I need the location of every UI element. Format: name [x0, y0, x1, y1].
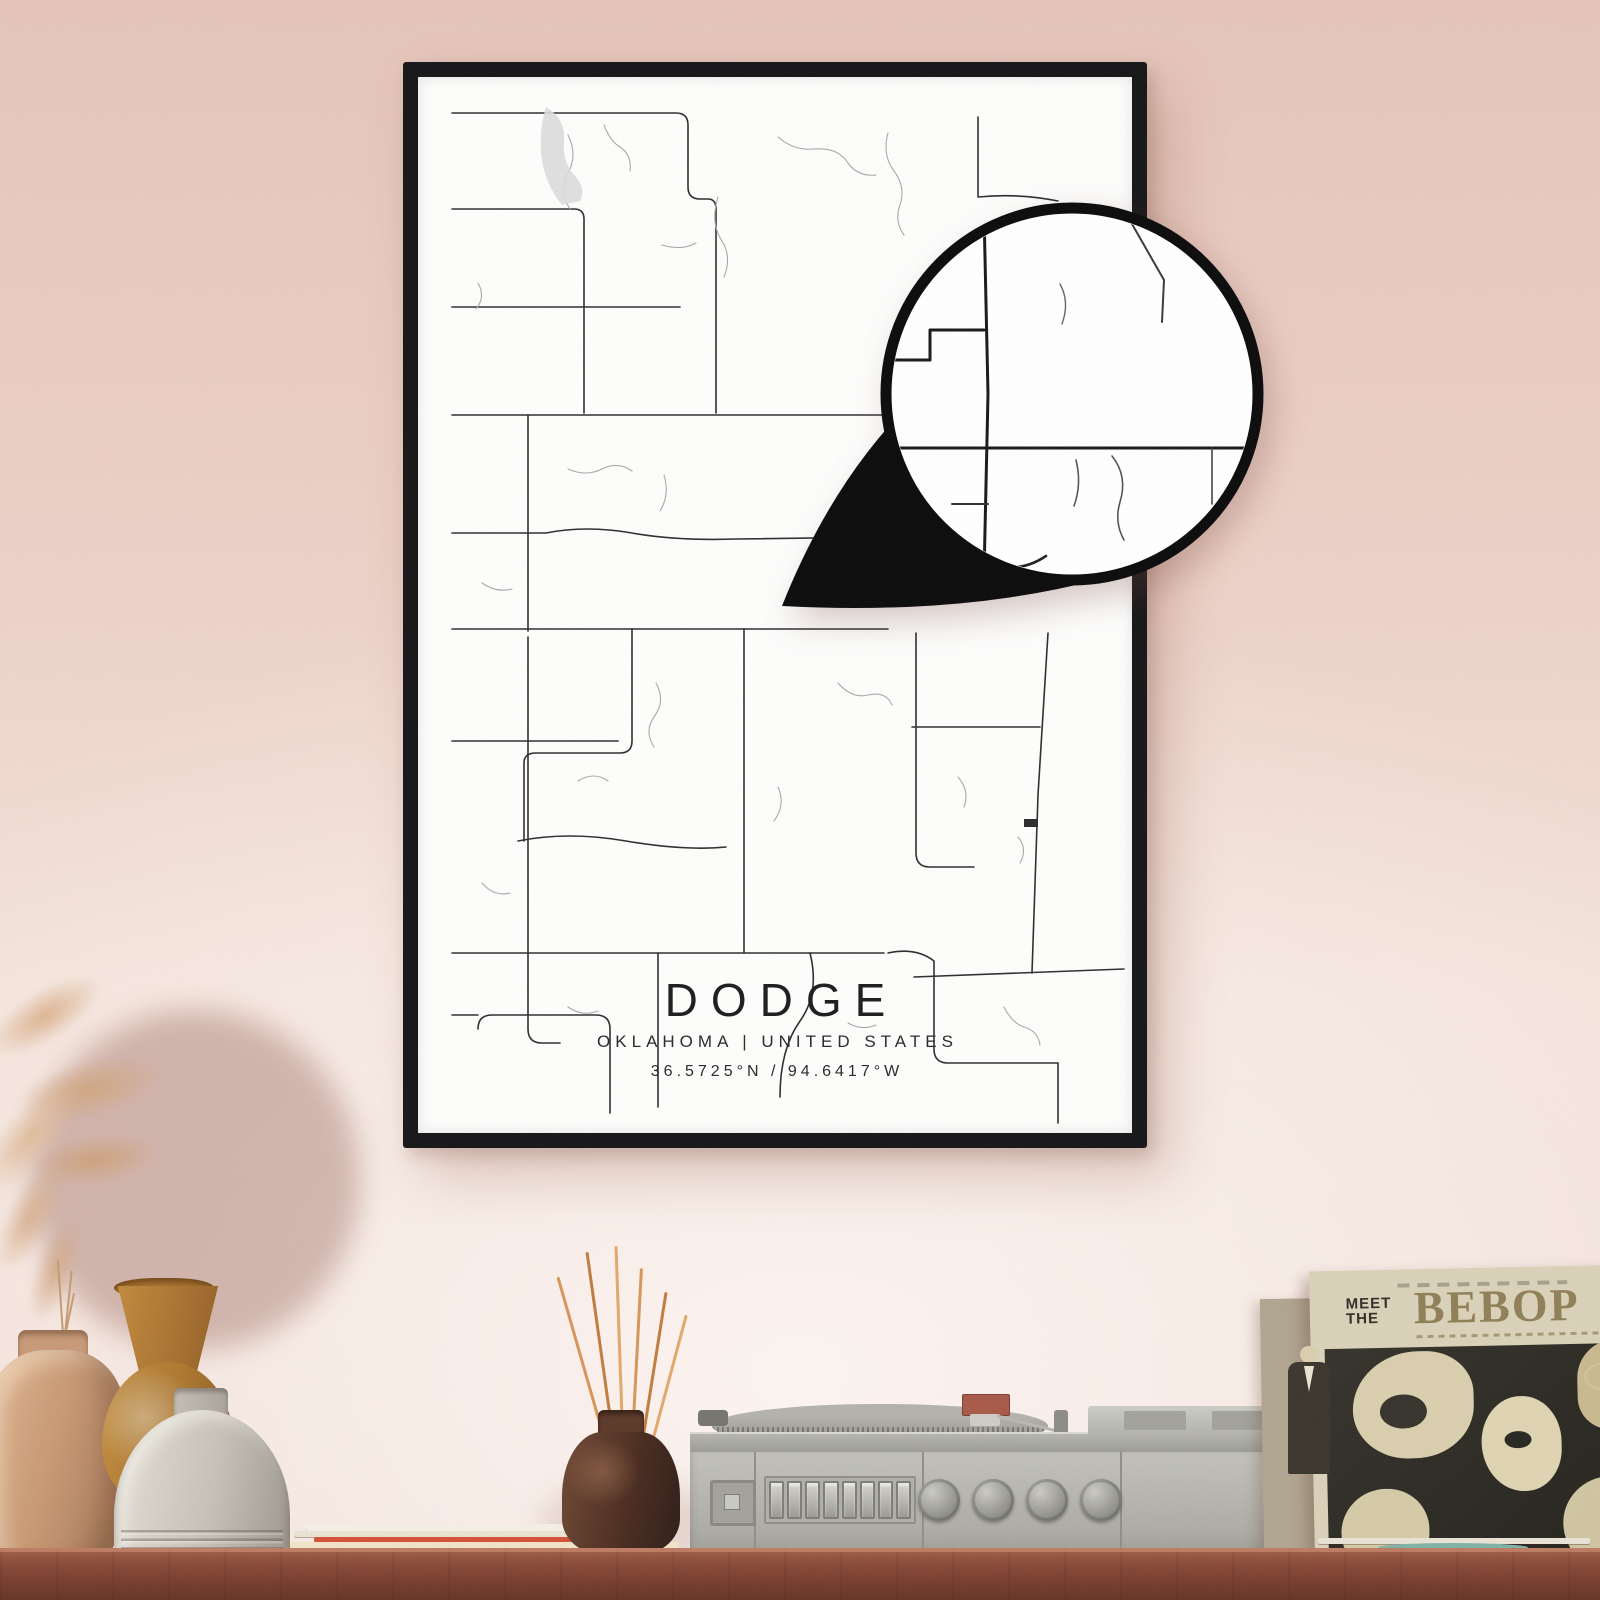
preset-button-row	[764, 1476, 916, 1524]
diffuser-bottle	[562, 1432, 680, 1556]
volume-knob	[918, 1479, 960, 1521]
cartridge-base	[970, 1414, 1000, 1426]
product-photo-scene: DODGE OKLAHOMA | UNITED STATES 36.5725°N…	[0, 0, 1600, 1600]
treble-knob	[1026, 1479, 1068, 1521]
preset-button	[805, 1481, 820, 1519]
platter-clip	[698, 1410, 728, 1426]
reed-diffuser	[540, 1250, 700, 1536]
sleeve-title-meet: MEET THE	[1346, 1296, 1392, 1327]
preset-button	[878, 1481, 893, 1519]
record-sleeve: MEET THE BEBOP	[1309, 1265, 1600, 1564]
tuning-knob	[1080, 1479, 1122, 1521]
cartridge	[962, 1394, 1010, 1416]
preset-button	[896, 1481, 911, 1519]
bass-knob	[972, 1479, 1014, 1521]
player-body	[690, 1452, 1322, 1562]
preset-button	[769, 1481, 784, 1519]
poster-subtitle: OKLAHOMA | UNITED STATES	[418, 1032, 1132, 1052]
wood-shelf	[0, 1548, 1600, 1600]
preset-button	[823, 1481, 838, 1519]
poster-title: DODGE	[418, 973, 1132, 1027]
sleeve-title-bebop: BEBOP	[1413, 1278, 1580, 1334]
preset-button	[787, 1481, 802, 1519]
suited-figurine	[1288, 1358, 1330, 1474]
river-water	[541, 107, 583, 205]
power-button	[710, 1480, 756, 1526]
sleeve-photo	[1325, 1342, 1600, 1563]
building-footprint	[1024, 819, 1038, 827]
poster-coordinates: 36.5725°N / 94.6417°W	[418, 1063, 1132, 1081]
zoom-detail-callout	[760, 164, 1290, 634]
preset-button	[860, 1481, 875, 1519]
magnifier-circle	[886, 208, 1258, 580]
preset-button	[842, 1481, 857, 1519]
